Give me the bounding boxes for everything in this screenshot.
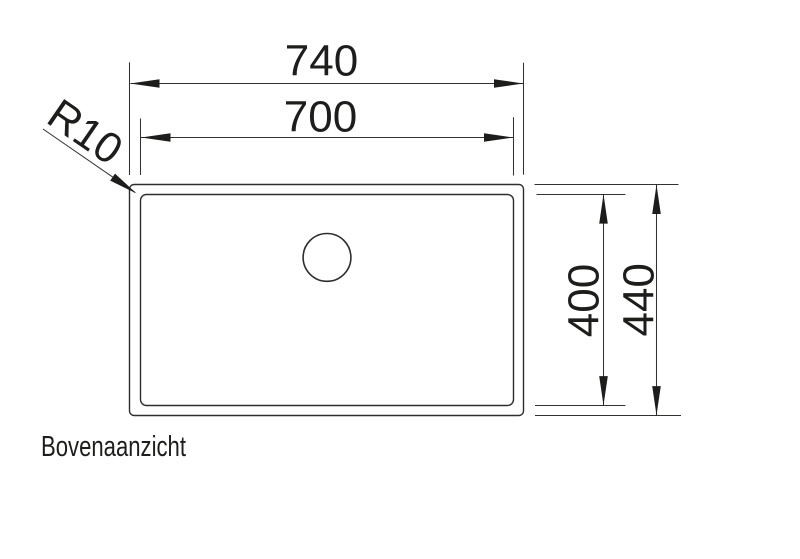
svg-text:440: 440 bbox=[614, 263, 663, 336]
svg-text:740: 740 bbox=[285, 37, 358, 86]
svg-text:Bovenaanzicht: Bovenaanzicht bbox=[41, 431, 186, 463]
svg-text:400: 400 bbox=[560, 264, 609, 337]
svg-text:700: 700 bbox=[284, 93, 357, 142]
